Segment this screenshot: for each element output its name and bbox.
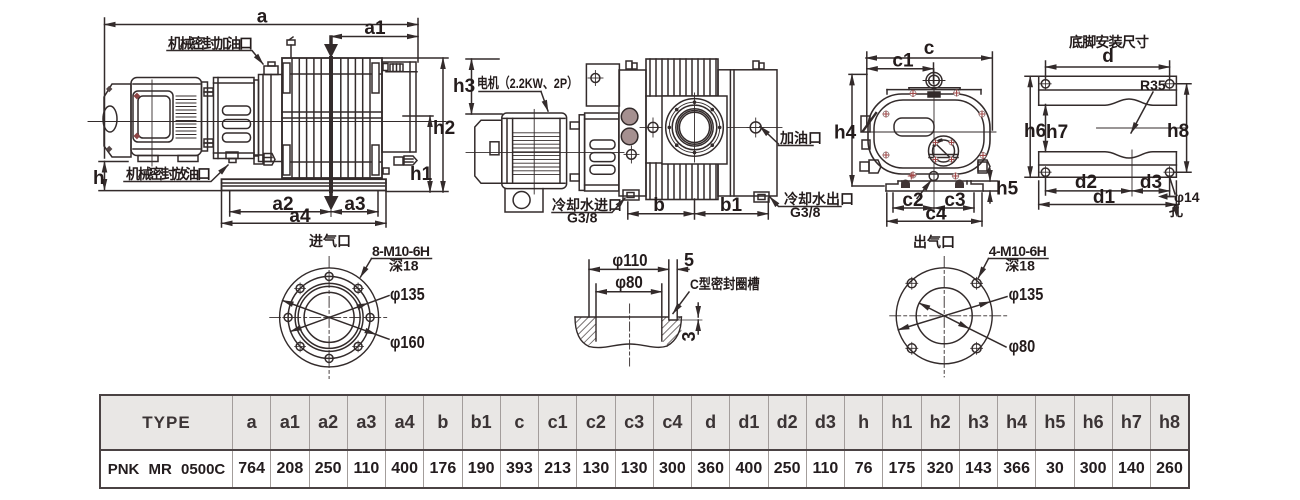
svg-text:φ110: φ110 [612, 250, 647, 271]
svg-text:h8: h8 [1167, 121, 1189, 142]
svg-text:h2: h2 [433, 118, 455, 139]
svg-text:φ135: φ135 [1009, 285, 1044, 305]
svg-text:d1: d1 [1093, 187, 1116, 208]
svg-text:φ80: φ80 [1009, 337, 1036, 357]
svg-text:d3: d3 [1140, 172, 1162, 193]
svg-text:出气口: 出气口 [913, 234, 955, 250]
svg-text:b1: b1 [720, 195, 743, 216]
svg-text:a: a [257, 7, 268, 28]
svg-text:a4: a4 [289, 206, 311, 227]
svg-text:h4: h4 [834, 123, 857, 144]
svg-text:c1: c1 [892, 51, 914, 72]
svg-text:a1: a1 [364, 18, 386, 39]
svg-text:φ80: φ80 [615, 272, 643, 293]
svg-text:R35: R35 [1140, 77, 1166, 93]
svg-text:加油口: 加油口 [779, 130, 822, 146]
svg-text:C型密封圈槽: C型密封圈槽 [690, 275, 760, 292]
svg-text:φ160: φ160 [390, 333, 425, 353]
svg-text:h3: h3 [453, 76, 475, 97]
svg-text:h6: h6 [1024, 121, 1046, 142]
svg-text:深18: 深18 [1005, 258, 1035, 274]
svg-text:c: c [924, 38, 935, 59]
svg-text:c4: c4 [925, 204, 947, 225]
svg-text:h7: h7 [1046, 122, 1068, 143]
svg-text:电机（2.2KW、2P）: 电机（2.2KW、2P） [477, 75, 578, 91]
svg-text:5: 5 [684, 250, 694, 270]
svg-text:c3: c3 [944, 190, 965, 211]
svg-text:h5: h5 [996, 179, 1019, 200]
svg-text:c2: c2 [902, 190, 923, 211]
svg-text:3: 3 [679, 331, 699, 341]
svg-text:d: d [1102, 46, 1114, 67]
svg-text:φ135: φ135 [390, 285, 425, 305]
svg-text:b: b [653, 195, 665, 216]
svg-text:进气口: 进气口 [309, 233, 351, 249]
svg-text:a3: a3 [344, 194, 365, 215]
svg-text:h: h [93, 168, 105, 189]
svg-text:h1: h1 [410, 164, 433, 185]
svg-text:深18: 深18 [389, 258, 419, 274]
svg-text:机械密封加油口: 机械密封加油口 [168, 36, 253, 52]
svg-text:机械密封放油口: 机械密封放油口 [126, 166, 211, 182]
